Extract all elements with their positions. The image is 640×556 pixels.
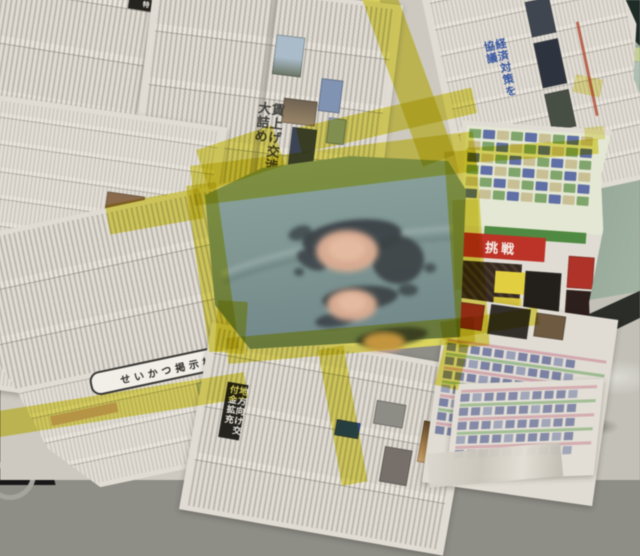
photo-scene: 特集 解説 賃上げ交渉大詰め 特集 経済対策を協議 解説 せいかつ掲示板 (0, 0, 640, 480)
masking-tape-overlap (452, 199, 481, 290)
masking-tape-corner-bottom-left (214, 300, 248, 354)
masking-tape-edge-bit (584, 126, 605, 141)
